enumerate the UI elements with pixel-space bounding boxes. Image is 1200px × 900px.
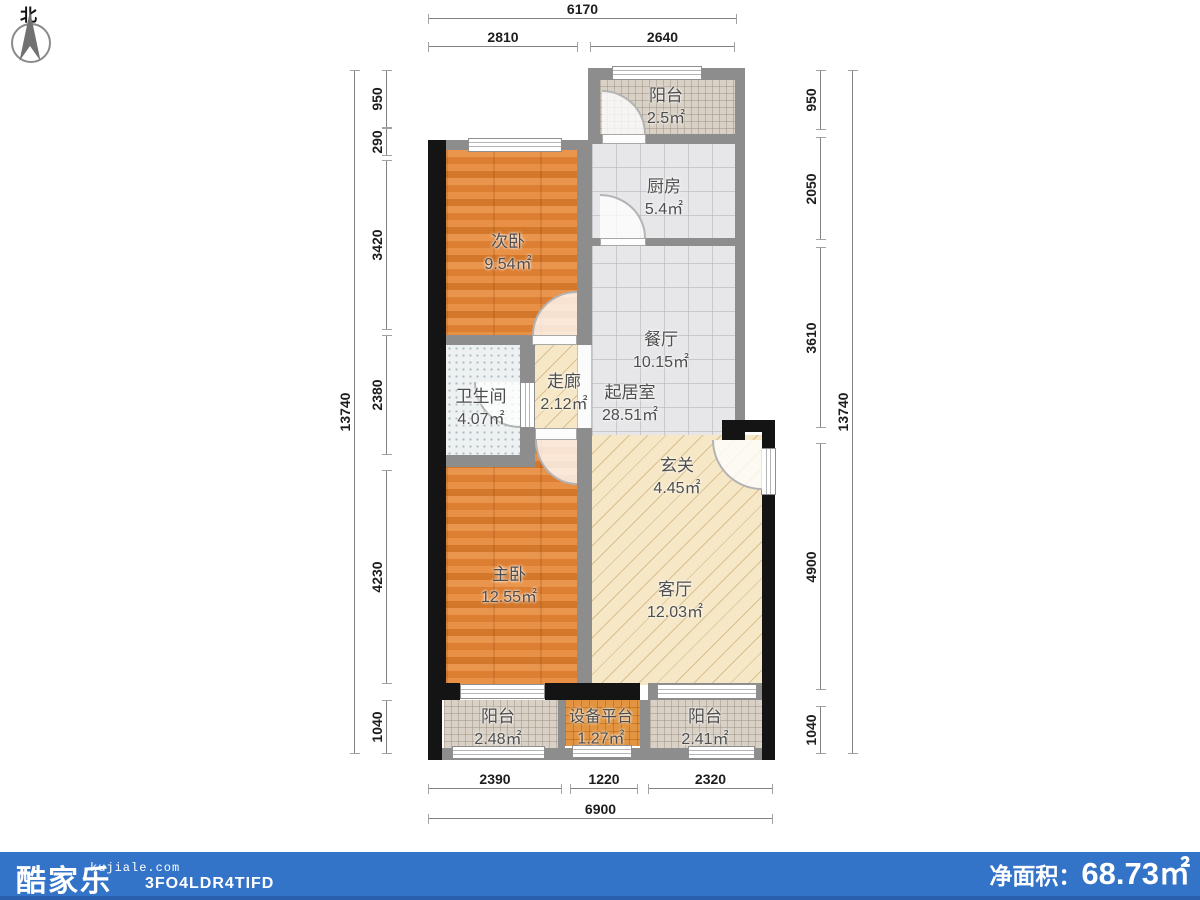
dim-bottom-3: 2320 [648,788,773,789]
room-label-bathroom: 卫生间 4.07㎡ [456,385,507,431]
compass: 北 [8,0,58,66]
dim-right-2: 2050 [820,137,821,240]
dim-left-5: 4230 [386,470,387,684]
dim-left-3: 3420 [386,160,387,330]
room-label-corridor: 走廊 2.12㎡ [540,370,587,416]
net-area: 净面积： 68.73㎡ [989,848,1190,893]
door-sill [602,134,646,144]
dim-right-total: 13740 [852,70,853,754]
wall-segment [577,150,592,345]
wall-segment [558,700,565,748]
wall-segment [640,700,650,748]
dim-right-1: 950 [820,70,821,130]
net-area-value: 68.73㎡ [1081,848,1190,893]
dim-bottom-2: 1220 [570,788,638,789]
dim-bottom-1: 2390 [428,788,562,789]
dim-left-6: 1040 [386,700,387,754]
wall-segment [722,420,745,440]
room-label-balcony-top: 阳台 2.5㎡ [647,84,685,130]
wall-segment [428,695,442,760]
room-label-kitchen: 厨房 5.4㎡ [645,175,683,221]
floor-plan-page: 北 [0,0,1200,900]
dim-left-1: 950 [386,70,387,128]
dim-right-5: 1040 [820,706,821,754]
dim-right-4: 4900 [820,443,821,690]
dim-top-2: 2640 [590,46,735,47]
dim-bottom-total: 6900 [428,818,773,819]
door-sill [600,238,646,246]
door-sill [535,428,577,440]
room-label-entry: 玄关 4.45㎡ [653,454,700,500]
dim-left-4: 2380 [386,335,387,455]
room-label-bedroom2: 次卧 9.54㎡ [484,230,531,276]
window [657,684,757,699]
wall-segment [545,683,640,700]
wall-segment [762,683,775,760]
dim-top-1: 2810 [428,46,578,47]
wall-segment [577,440,592,690]
window [612,66,702,80]
entry-door-panel [761,448,776,495]
wall-segment [428,140,446,695]
dim-left-total: 13740 [354,70,355,754]
room-label-bedroom1: 主卧 12.55㎡ [481,563,537,609]
brand-site: kujiale.com [90,861,180,875]
room-label-balcony-left: 阳台 2.48㎡ [474,705,521,751]
dim-left-2: 290 [386,128,387,156]
bathroom-door-panel [520,382,535,428]
room-label-dining: 餐厅 10.15㎡ [633,328,689,374]
room-label-equipment: 设备平台 1.27㎡ [569,707,633,752]
footer-strip [0,896,1200,900]
dim-top-total: 6170 [428,18,737,19]
window [460,684,545,699]
door-sill [532,335,577,345]
plan-code: 3FO4LDR4TIFD [145,875,274,893]
room-label-balcony-right: 阳台 2.41㎡ [681,705,728,751]
room-label-living-core: 起居室 28.51㎡ [602,381,658,427]
room-label-living: 客厅 12.03㎡ [647,578,703,624]
net-area-label: 净面积： [989,857,1081,891]
wall-segment [428,683,460,700]
wall-segment [735,80,745,425]
dim-right-3: 3610 [820,247,821,428]
footer-bar: 酷家乐 kujiale.com 3FO4LDR4TIFD 净面积： 68.73㎡ [0,852,1200,896]
window [468,138,562,152]
